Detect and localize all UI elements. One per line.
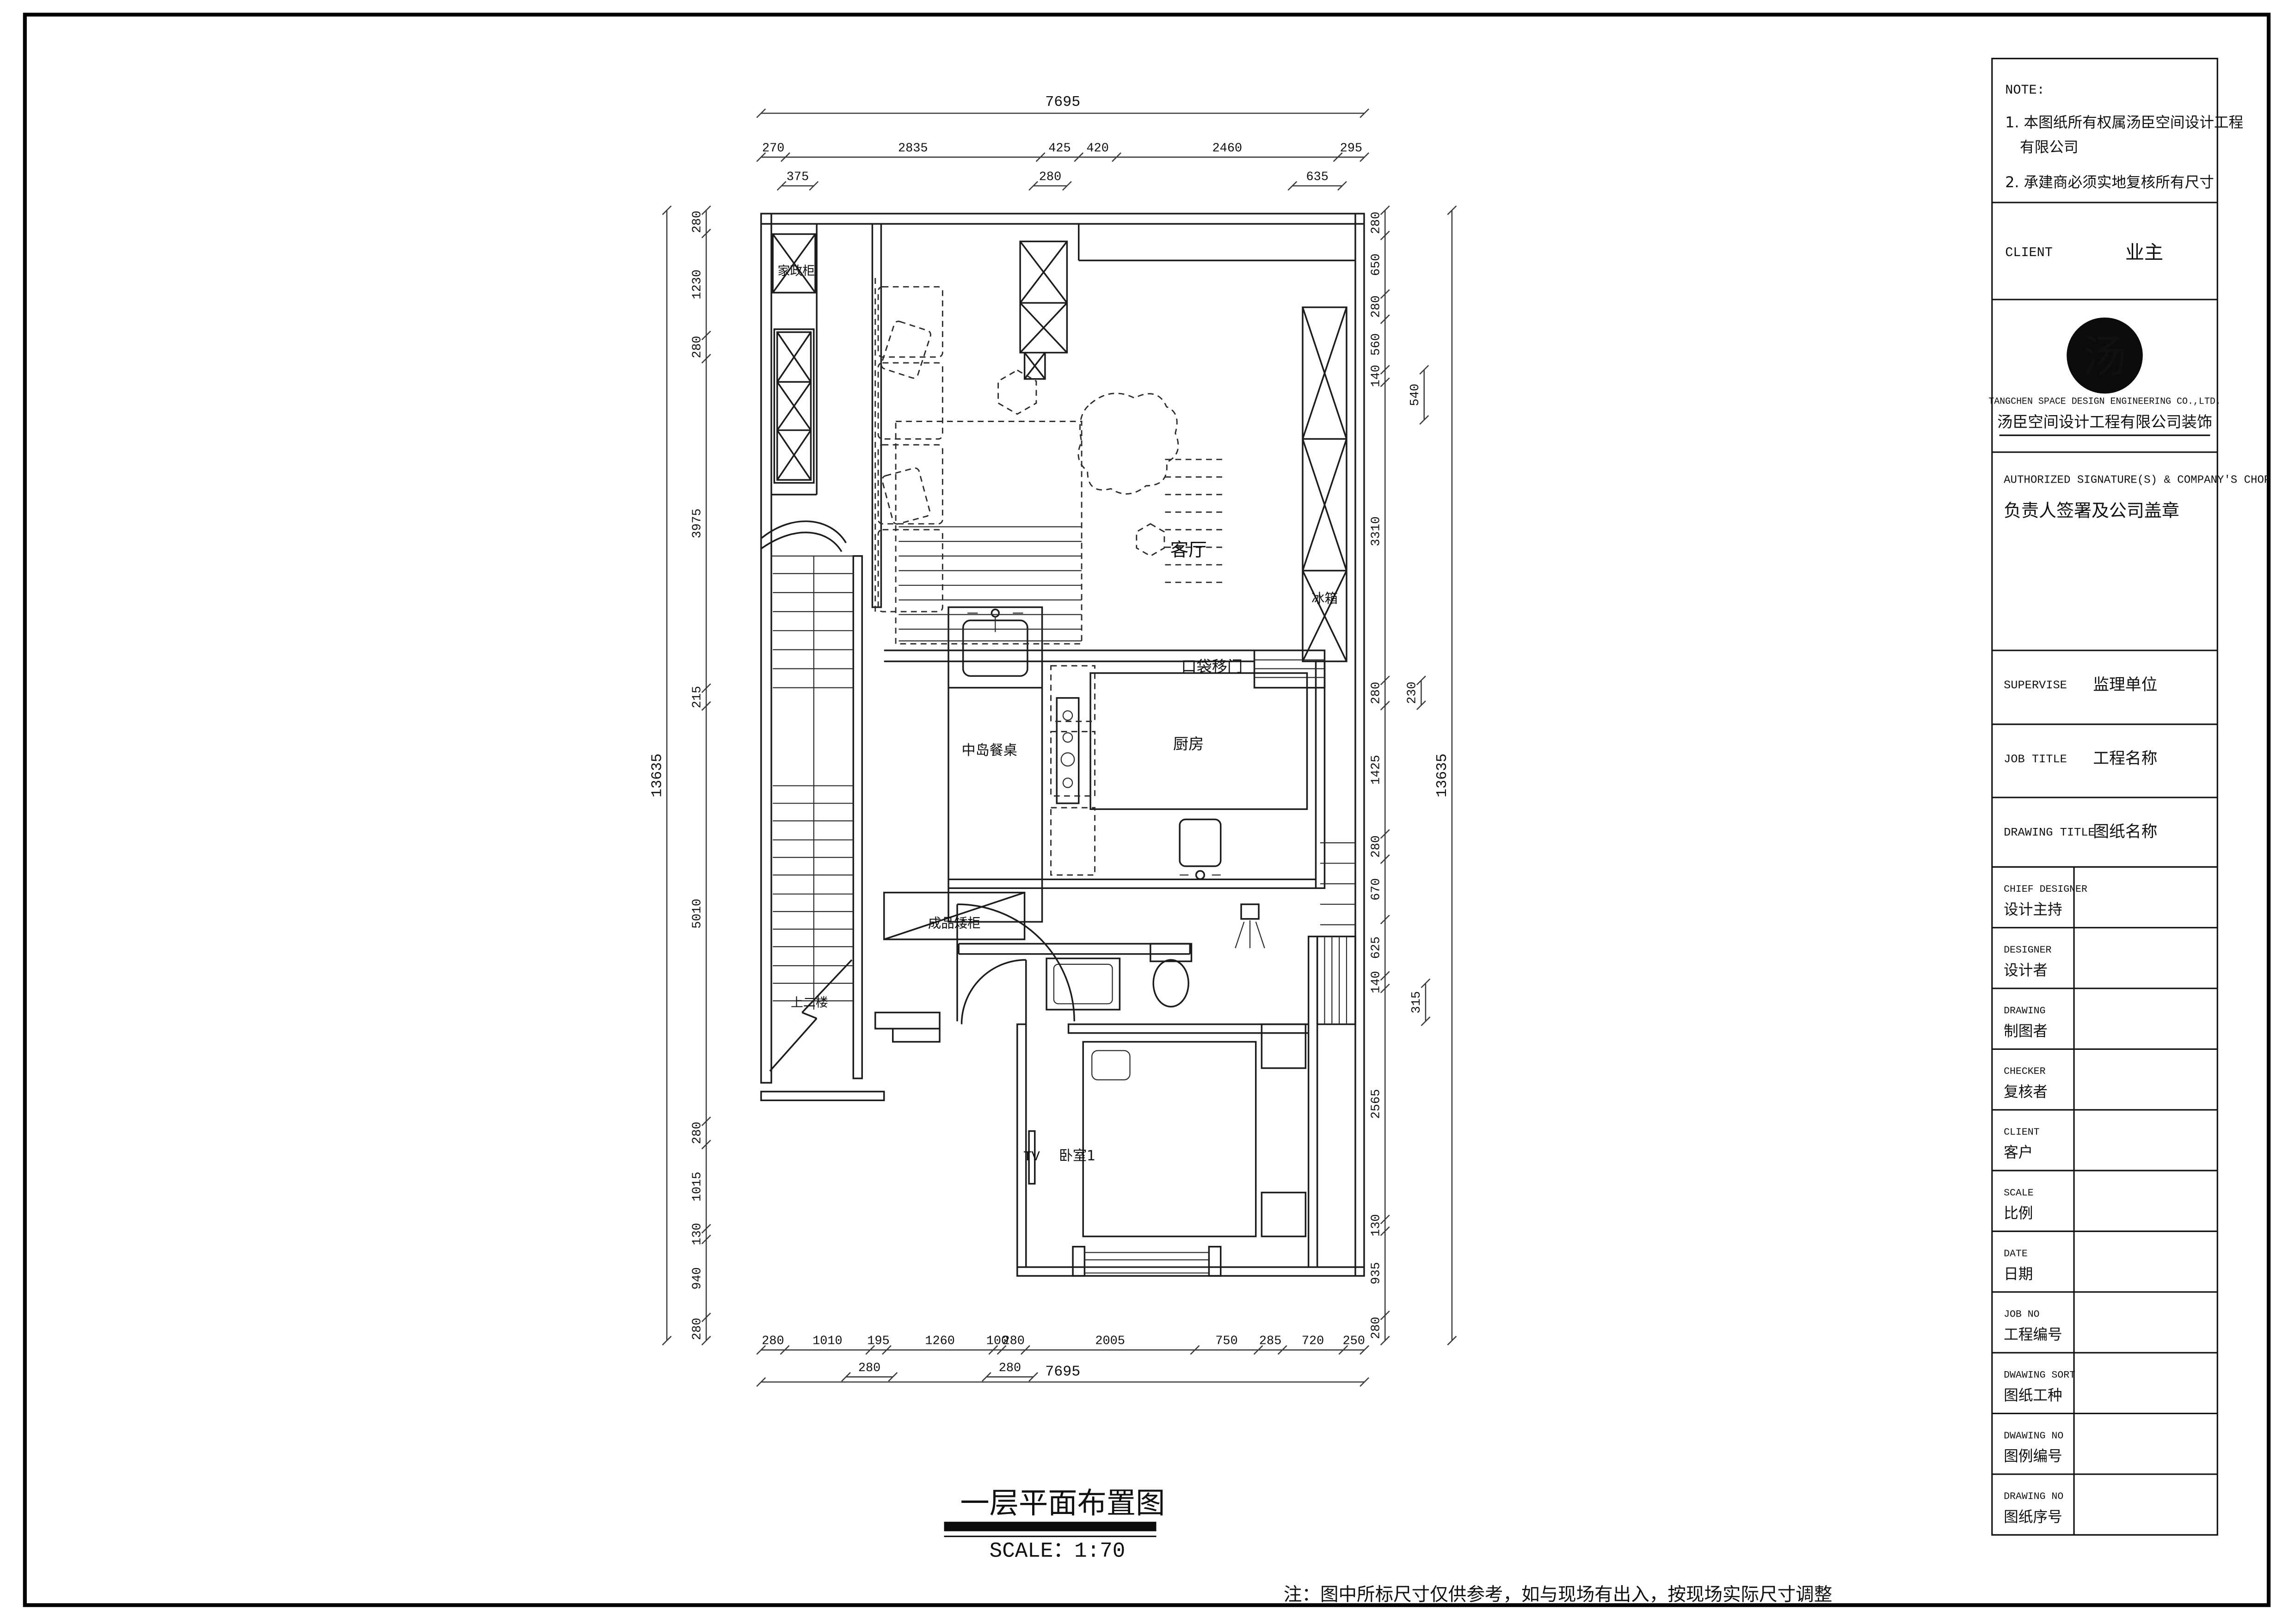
hatching bbox=[898, 460, 1355, 925]
hexagon-stool bbox=[1137, 524, 1164, 556]
dimension-label: 315 bbox=[1410, 991, 1424, 1013]
row-label-cn: 日期 bbox=[2004, 1266, 2033, 1282]
note-line-3: 2. 承建商必须实地复核所有尺寸 bbox=[2005, 174, 2214, 191]
dimension-label: 3310 bbox=[1370, 516, 1384, 546]
nightstand bbox=[1261, 1024, 1305, 1068]
rug bbox=[896, 422, 1082, 644]
dimension-label: 2835 bbox=[898, 141, 928, 155]
dimension-label: 230 bbox=[1406, 681, 1420, 704]
section-label-en: JOB TITLE bbox=[2004, 753, 2067, 766]
room-label: 家政柜 bbox=[778, 264, 815, 278]
dimension-label: 2005 bbox=[1095, 1335, 1125, 1348]
row-label-en: DRAWING bbox=[2004, 1005, 2045, 1017]
staircase bbox=[761, 521, 940, 1071]
dimension-label: 1015 bbox=[691, 1172, 705, 1202]
dimension-label: 1260 bbox=[925, 1335, 955, 1348]
nightstand bbox=[1261, 1193, 1305, 1237]
title-underline-bar bbox=[944, 1522, 1157, 1532]
row-label-en: DRAWING NO bbox=[2004, 1491, 2063, 1502]
dimension-label: 130 bbox=[1370, 1214, 1384, 1236]
dimension-chain-right-overall: 13635 bbox=[1434, 206, 1456, 1345]
dimension-label: 215 bbox=[691, 686, 705, 708]
dimension-label: 280 bbox=[1370, 295, 1384, 318]
dimension-label: 375 bbox=[787, 170, 809, 184]
dimension-chain-top-main: 27028354254202460295 bbox=[757, 141, 1369, 161]
logo-character: 汤 bbox=[2083, 331, 2127, 382]
section-label-cn: 图纸名称 bbox=[2093, 822, 2157, 841]
row-label-en: CHECKER bbox=[2004, 1066, 2045, 1077]
kitchen-sink bbox=[1180, 819, 1221, 866]
dimension-label: 560 bbox=[1370, 333, 1384, 355]
room-label: 上二楼 bbox=[791, 996, 828, 1010]
authorized-label-cn: 负责人签署及公司盖章 bbox=[2004, 500, 2179, 521]
dimension-chain-right-sub-230: 230 bbox=[1406, 676, 1426, 710]
row-label-en: SCALE bbox=[2004, 1188, 2034, 1199]
dimension-chain-bottom-sub-2: 280 bbox=[982, 1361, 1038, 1381]
row-label-cn: 制图者 bbox=[2004, 1023, 2048, 1040]
dimension-label: 140 bbox=[1370, 365, 1384, 387]
living-room-furniture bbox=[875, 278, 1178, 875]
dimension-label: 280 bbox=[1370, 1317, 1384, 1339]
cabinets bbox=[773, 234, 1347, 661]
dimension-label: 280 bbox=[858, 1361, 880, 1375]
walls bbox=[761, 214, 1364, 1276]
room-label: 成品矮柜 bbox=[928, 916, 981, 931]
dimension-chain-right-sub-315: 315 bbox=[1410, 979, 1430, 1026]
dimension-label: 1425 bbox=[1370, 755, 1384, 785]
row-label-en: JOB NO bbox=[2004, 1309, 2039, 1320]
dimension-chains: 7695270283542542024602953752806352801010… bbox=[649, 94, 1456, 1386]
dimension-label: 670 bbox=[1370, 878, 1384, 901]
drawing-title-text: 一层平面布置图 bbox=[960, 1486, 1165, 1520]
dimension-label: 635 bbox=[1306, 170, 1328, 184]
dimension-label: 280 bbox=[1370, 835, 1384, 858]
dimension-chain-bottom-sub-1: 280 bbox=[842, 1361, 897, 1381]
dimension-chain-top-sub-3: 635 bbox=[1288, 170, 1347, 190]
row-label-en: DESIGNER bbox=[2004, 945, 2051, 956]
scale-text: SCALE：1:70 bbox=[990, 1539, 1126, 1563]
dimension-label: 13635 bbox=[1434, 754, 1451, 797]
dimension-chain-right-main: 2806502805601403310280142528067062514025… bbox=[1370, 206, 1390, 1345]
dimension-label: 280 bbox=[1370, 212, 1384, 234]
dimension-label: 3975 bbox=[691, 509, 705, 539]
dimension-chain-top-sub-1: 375 bbox=[777, 170, 818, 190]
dimension-label: 720 bbox=[1302, 1335, 1324, 1348]
row-label-cn: 图例编号 bbox=[2004, 1448, 2062, 1465]
dimension-label: 280 bbox=[1370, 682, 1384, 704]
row-label-en: DWAWING SORT bbox=[2004, 1370, 2075, 1381]
dimension-label: 420 bbox=[1086, 141, 1108, 155]
row-label-cn: 设计者 bbox=[2004, 962, 2048, 979]
dimension-label: 750 bbox=[1215, 1335, 1237, 1348]
section-label-en: DRAWING TITLE bbox=[2004, 826, 2095, 839]
room-label: 客厅 bbox=[1170, 539, 1207, 561]
note-line-1: 1. 本图纸所有权属汤臣空间设计工程 bbox=[2005, 114, 2243, 131]
row-label-en: CHIEF DESIGNER bbox=[2004, 884, 2087, 895]
dimension-label: 195 bbox=[867, 1335, 889, 1348]
hexagon-stool bbox=[998, 370, 1036, 414]
dimension-chain-right-sub-540: 540 bbox=[1409, 365, 1428, 424]
dimension-label: 625 bbox=[1370, 937, 1384, 959]
room-label: 中岛餐桌 bbox=[962, 742, 1017, 759]
row-label-cn: 工程编号 bbox=[2004, 1327, 2062, 1343]
dimension-label: 425 bbox=[1048, 141, 1071, 155]
dimension-label: 935 bbox=[1370, 1262, 1384, 1284]
room-label: TV bbox=[1023, 1149, 1040, 1164]
client-value: 业主 bbox=[2125, 241, 2163, 264]
authorized-label-en: AUTHORIZED SIGNATURE(S) & COMPANY'S CHOP bbox=[2004, 474, 2270, 487]
bed bbox=[1083, 1042, 1255, 1237]
dimension-label: 280 bbox=[1039, 170, 1061, 184]
room-label: 口袋移门 bbox=[1181, 657, 1243, 675]
fixtures bbox=[884, 607, 1307, 1024]
dimension-label: 1010 bbox=[812, 1335, 843, 1348]
dimension-label: 540 bbox=[1409, 384, 1422, 406]
company-name-en: TANGCHEN SPACE DESIGN ENGINEERING CO.,LT… bbox=[1988, 396, 2221, 407]
row-label-cn: 图纸工种 bbox=[2004, 1387, 2062, 1404]
dimension-label: 940 bbox=[691, 1267, 705, 1289]
row-label-cn: 复核者 bbox=[2004, 1084, 2048, 1100]
dimension-chain-left-overall: 13635 bbox=[649, 206, 671, 1345]
pillow bbox=[880, 320, 932, 380]
row-label-cn: 客户 bbox=[2004, 1145, 2033, 1161]
floorplan-canvas: 7695270283542542024602953752806352801010… bbox=[0, 0, 2295, 1624]
dimension-label: 2565 bbox=[1370, 1089, 1384, 1119]
dimension-label: 2460 bbox=[1212, 141, 1243, 155]
note-heading: NOTE: bbox=[2005, 83, 2044, 98]
room-label: 卧室1 bbox=[1059, 1148, 1095, 1164]
row-label-cn: 设计主持 bbox=[2004, 901, 2062, 918]
dimension-label: 13635 bbox=[649, 754, 665, 797]
title-block: NOTE: 1. 本图纸所有权属汤臣空间设计工程 有限公司 2. 承建商必须实地… bbox=[1988, 59, 2270, 1535]
dimension-label: 130 bbox=[691, 1223, 705, 1245]
row-label-en: DATE bbox=[2004, 1248, 2028, 1259]
row-label-en: CLIENT bbox=[2004, 1127, 2040, 1138]
note-line-2: 有限公司 bbox=[2020, 139, 2079, 156]
row-label-cn: 图纸序号 bbox=[2004, 1509, 2062, 1526]
shower-icon bbox=[1235, 920, 1264, 948]
dimension-label: 280 bbox=[999, 1361, 1021, 1375]
row-label-cn: 比例 bbox=[2004, 1205, 2033, 1222]
window bbox=[1084, 1252, 1209, 1273]
dimension-label: 250 bbox=[1343, 1335, 1365, 1348]
drawing-sheet: 7695270283542542024602953752806352801010… bbox=[0, 0, 2295, 1624]
toilet bbox=[1153, 960, 1188, 1006]
dimension-chain-left-main: 2801230280397521550102801015130940280 bbox=[691, 206, 711, 1345]
dimension-label: 295 bbox=[1340, 141, 1362, 155]
coffee-table bbox=[1078, 393, 1178, 494]
bottom-note: 注：图中所标尺寸仅供参考，如与现场有出入，按现场实际尺寸调整 bbox=[1284, 1584, 1832, 1606]
dimension-chain-top-sub-2: 280 bbox=[1029, 170, 1071, 190]
section-label-cn: 工程名称 bbox=[2093, 749, 2157, 768]
pillow bbox=[881, 467, 931, 525]
dimension-label: 1230 bbox=[691, 270, 705, 300]
dimension-label: 7695 bbox=[1045, 94, 1080, 110]
dimension-chain-top-overall: 7695 bbox=[757, 94, 1369, 117]
room-label: 厨房 bbox=[1173, 735, 1204, 753]
closet bbox=[1317, 937, 1355, 1024]
section-label-cn: 监理单位 bbox=[2093, 675, 2157, 694]
dimension-label: 5010 bbox=[691, 899, 705, 929]
footer: 一层平面布置图 SCALE：1:70 注：图中所标尺寸仅供参考，如与现场有出入，… bbox=[944, 1486, 1833, 1606]
client-label: CLIENT bbox=[2005, 245, 2053, 260]
dimension-label: 140 bbox=[1370, 971, 1384, 993]
dimension-label: 7695 bbox=[1045, 1363, 1080, 1380]
dimension-chain-bottom-main: 280101019512601002802005750285720250 bbox=[757, 1335, 1369, 1354]
row-label-en: DWAWING NO bbox=[2004, 1430, 2063, 1441]
bedroom bbox=[1029, 937, 1355, 1276]
company-name-cn: 汤臣空间设计工程有限公司装饰 bbox=[1997, 413, 2212, 431]
section-label-en: SUPERVISE bbox=[2004, 679, 2067, 692]
room-label: 冰箱 bbox=[1311, 591, 1338, 606]
dimension-label: 650 bbox=[1370, 253, 1384, 276]
